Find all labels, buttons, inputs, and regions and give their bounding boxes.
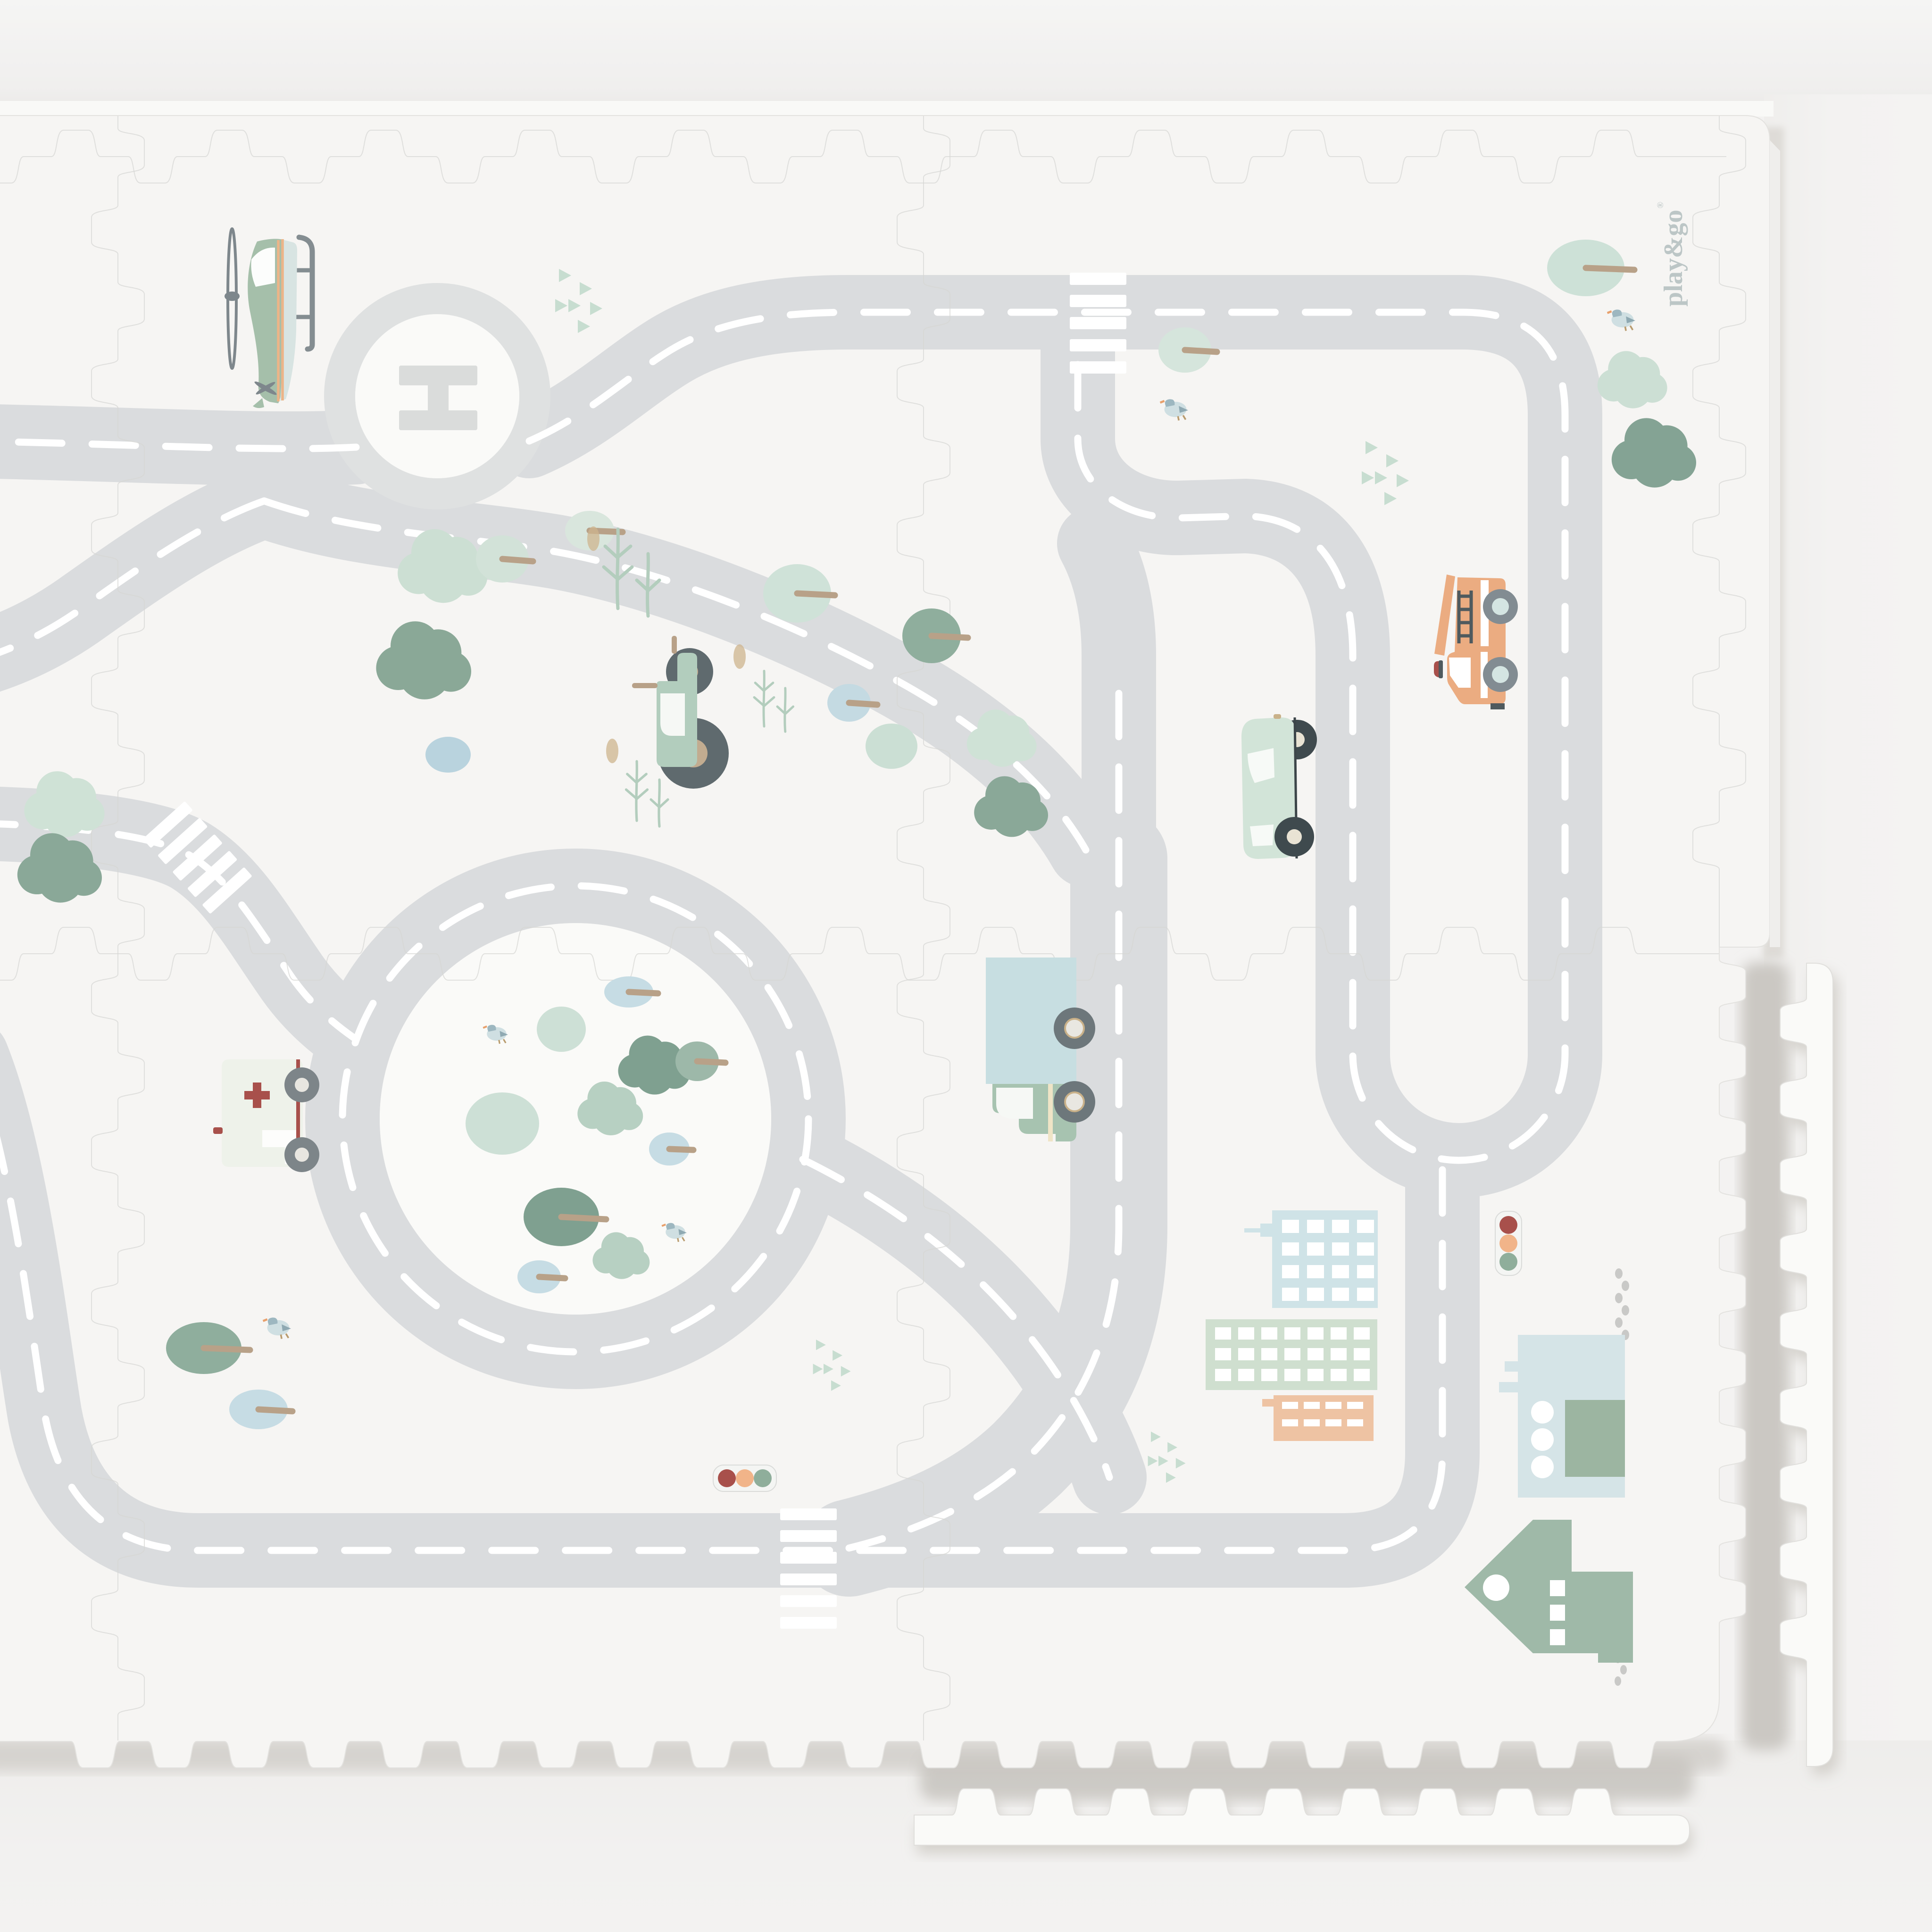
svg-text:®: ® bbox=[1656, 202, 1666, 208]
svg-text:play&go: play&go bbox=[1659, 210, 1688, 307]
